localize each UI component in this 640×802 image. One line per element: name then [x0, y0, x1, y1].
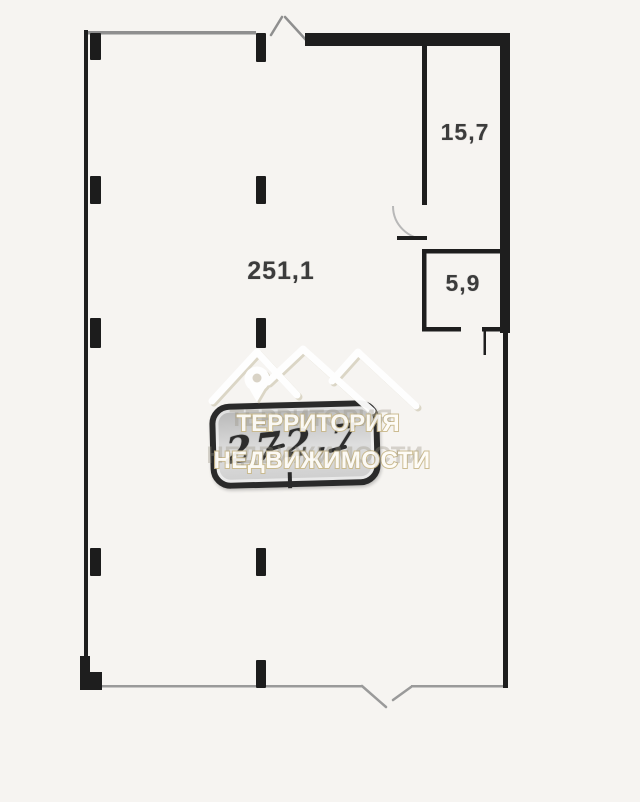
right-wall-upper	[500, 33, 510, 333]
floor-plan-page: 251,1 15,7 5,9 272,7 ТЕРРИТОРИЯ НЕДВИЖИМ…	[0, 0, 640, 802]
column	[256, 548, 266, 576]
watermark-line1: ТЕРРИТОРИЯ	[158, 410, 478, 438]
room-area-label-main: 251,1	[221, 257, 341, 286]
small-room-top-wall	[422, 249, 506, 254]
location-pin	[245, 367, 270, 403]
bottom-notch	[362, 686, 411, 707]
mountains-location-pin-icon	[180, 335, 440, 420]
entry-door-swing	[271, 17, 306, 40]
door-arc	[393, 206, 427, 239]
column	[90, 33, 101, 60]
small-room-bottom-wall-right	[482, 327, 503, 332]
column	[256, 33, 266, 62]
column	[90, 318, 101, 348]
bottom-line-left	[102, 685, 362, 688]
left-wall	[84, 30, 88, 658]
room-area-label-small: 5,9	[427, 270, 499, 297]
column	[256, 660, 266, 688]
small-room-bottom-wall-left	[422, 327, 461, 332]
bottom-line-right	[411, 685, 503, 688]
small-room-door-leaf	[484, 331, 487, 355]
column	[90, 548, 101, 576]
room-area-label-top-right: 15,7	[424, 119, 506, 146]
bottom-boundary	[102, 685, 503, 707]
watermark-line2: НЕДВИЖИМОСТИ	[162, 447, 482, 475]
interior-walls	[393, 46, 506, 355]
top-thin-wall	[86, 31, 256, 35]
column	[256, 176, 266, 204]
small-room-left-wall	[422, 249, 427, 331]
right-wall-lower	[503, 333, 508, 688]
column	[90, 176, 101, 204]
left-wall-foot	[80, 656, 102, 690]
door-stub	[397, 236, 427, 240]
top-thick-wall	[305, 33, 510, 46]
